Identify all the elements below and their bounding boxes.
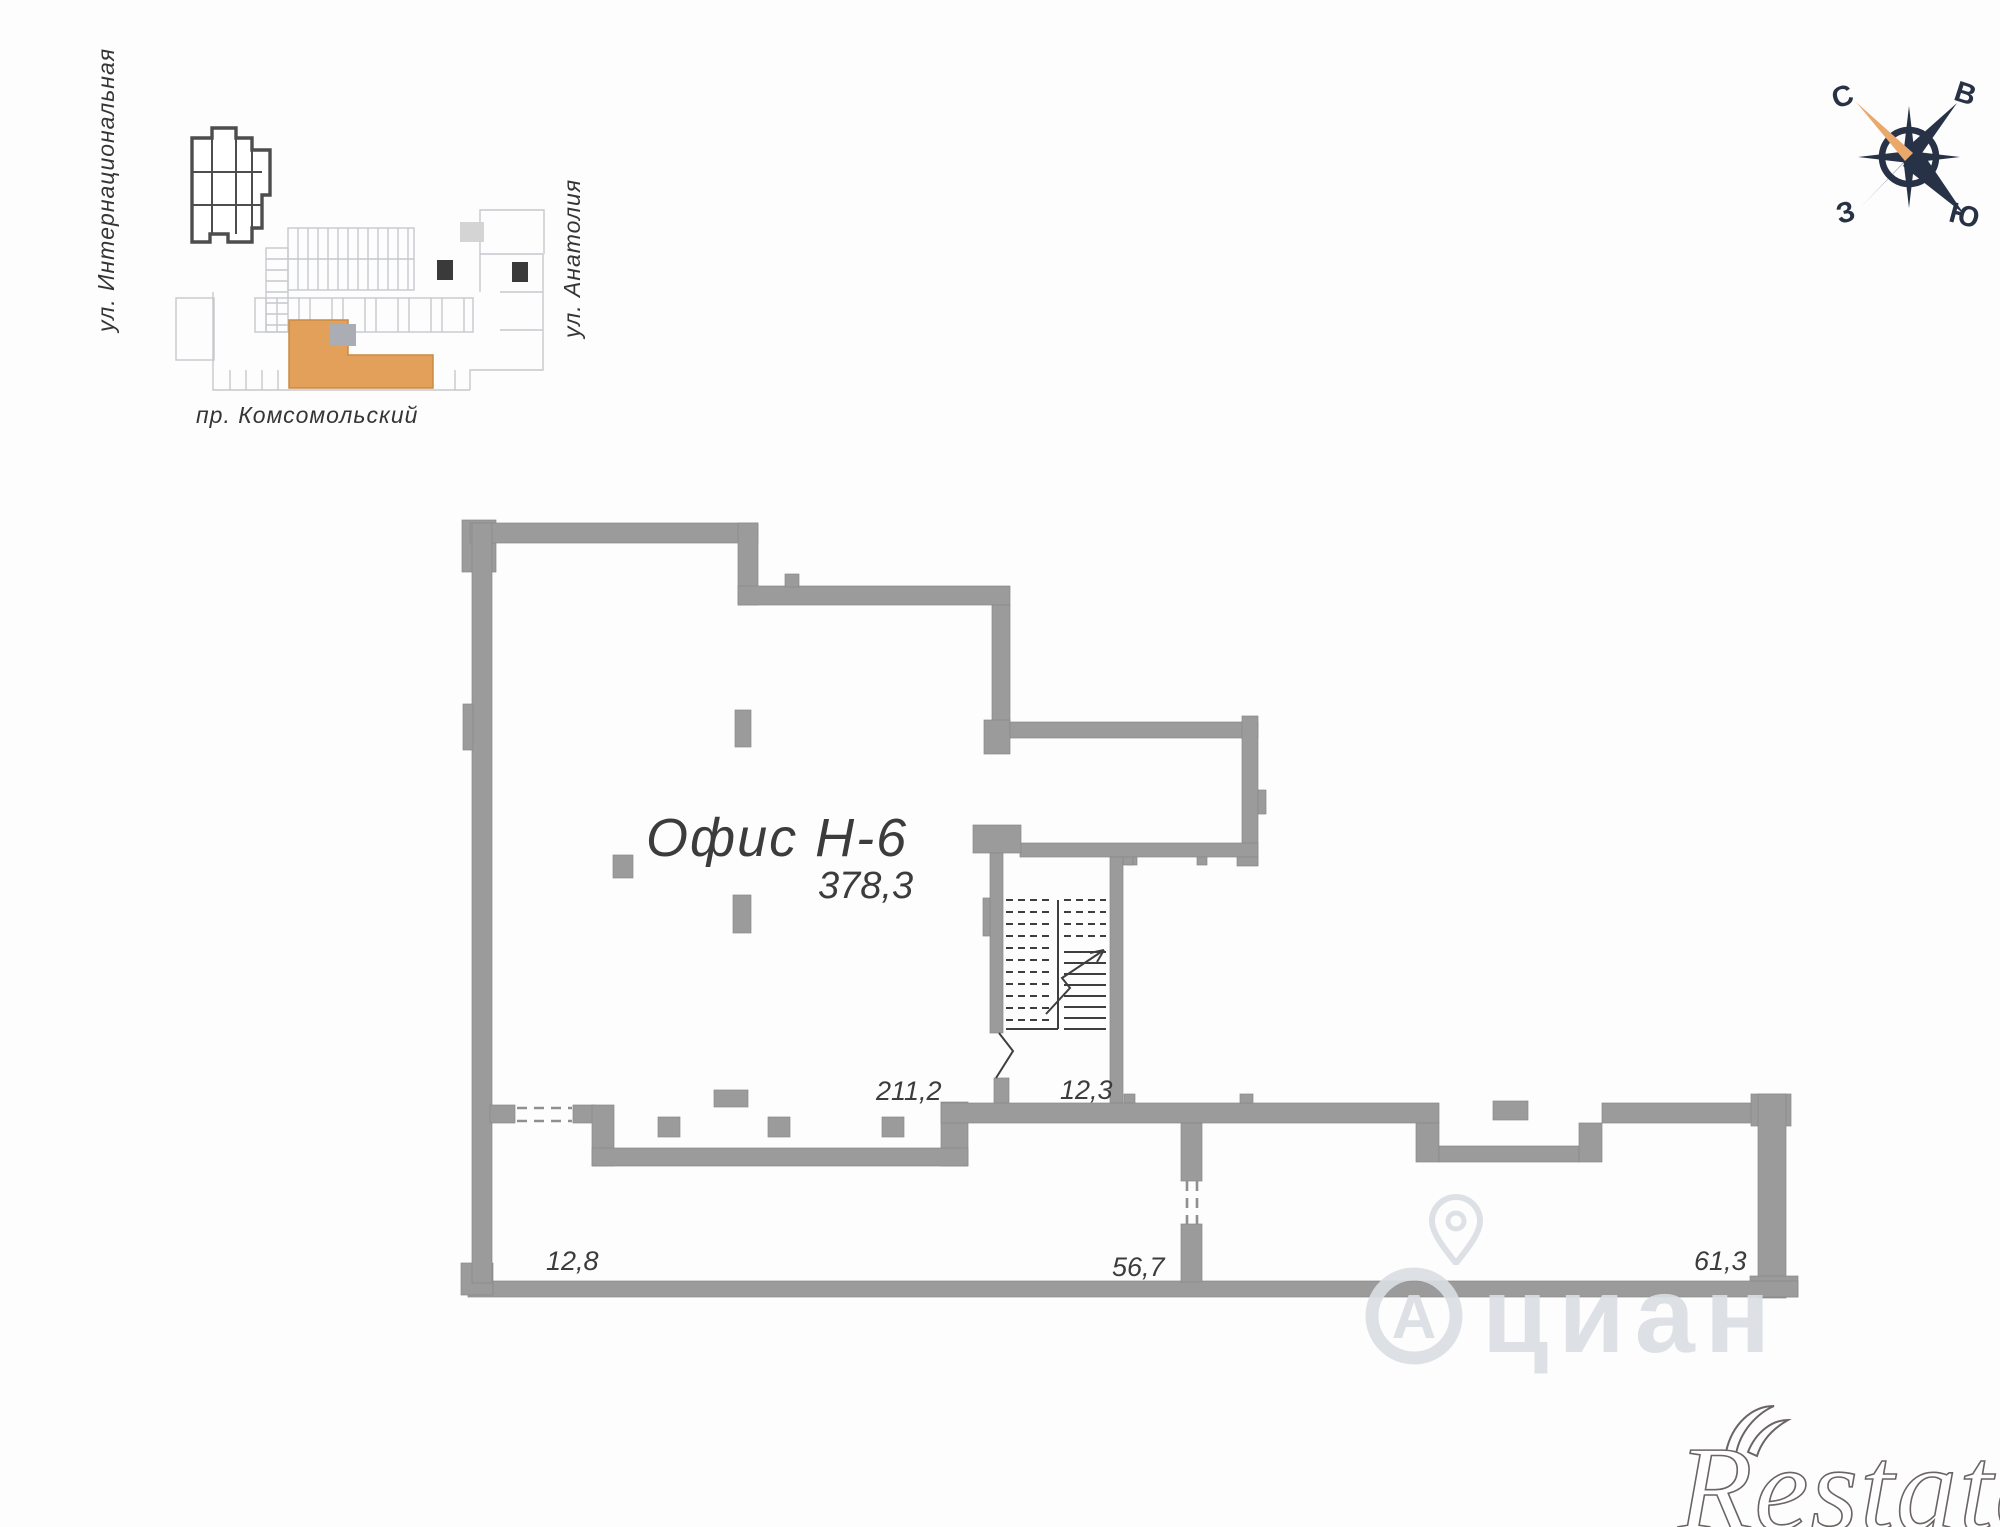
compass-letter-west: З [1833,195,1859,231]
room-area-label: 12,3 [1060,1075,1113,1105]
wall-pilaster [463,704,473,750]
wall-segment [1439,1146,1579,1162]
wall-notch [1197,857,1207,865]
stair-steps-left [1006,900,1052,1020]
cian-logo-letter: А [1392,1283,1437,1352]
wall-notch [785,574,799,587]
column [658,1117,680,1137]
minimap-bold-building [192,128,270,242]
wall-pilaster [983,898,990,936]
compass-rose: С В З Ю [1828,76,1983,236]
wall-notch [1123,857,1133,865]
minimap-gray-insert [330,324,356,346]
cian-watermark-text: циан [1482,1254,1780,1375]
minimap-hatch-block [460,222,484,242]
wall-segment [1181,1224,1202,1282]
wall-segment [941,1103,1439,1123]
column [882,1117,904,1137]
wall-notch [1124,1094,1135,1103]
wall-segment [738,586,1010,605]
wall-segment [1416,1123,1439,1162]
walls [461,520,1798,1298]
wall-segment [1020,843,1258,857]
wall-segment [1110,857,1123,1104]
column [768,1117,790,1137]
wall-segment [470,523,758,543]
room-area-label: 12,8 [546,1246,599,1276]
floor-plan: Офис Н-6 378,3 211,2 12,3 12,8 56,7 61,3 [461,520,1798,1298]
plan-title: Офис Н-6 [646,808,908,868]
watermark-cian: А циан [1372,1197,1780,1375]
compass-letter-north: С [1828,79,1858,116]
wall-segment [992,605,1010,735]
wall-segment [990,853,1003,1033]
restate-watermark-text: Restate [1677,1422,2000,1527]
wall-segment [592,1148,968,1166]
wall-segment [472,523,492,1283]
column [733,895,751,933]
wall-segment [490,1105,515,1123]
stairs [1006,900,1106,1029]
wall-notch [1237,857,1258,866]
floorplan-page: { "map": { "street_left": "ул. Интернаци… [0,0,2000,1527]
column [1493,1101,1528,1120]
minimap-highlight-office [289,320,433,388]
street-label-bottom: пр. Комсомольский [196,402,418,428]
area-labels: Офис Н-6 378,3 211,2 12,3 12,8 56,7 61,3 [546,808,1747,1282]
door-swing [996,1033,1013,1078]
stair-direction-arrow [1046,950,1104,1014]
stair-steps-right-upper [1064,900,1106,936]
minimap-dark-block [512,262,528,282]
room-area-label: 211,2 [875,1076,942,1106]
wall-notch [1240,1094,1253,1103]
street-label-left: ул. Интернациональная [93,48,119,334]
minimap-dark-block [437,260,453,280]
room-area-label: 56,7 [1112,1252,1166,1282]
column [735,710,751,747]
column [613,855,633,878]
map-pin-hole [1448,1213,1464,1229]
wall-segment [994,1078,1009,1106]
watermark-restate: Restate [1677,1406,2000,1527]
wall-segment [1602,1103,1757,1123]
wall-segment [1010,722,1258,738]
plan-total-area: 378,3 [818,865,913,907]
column [714,1090,748,1107]
wall-segment [1579,1123,1602,1162]
wall-notch [1258,790,1266,814]
stair-steps-right-lower [1006,952,1106,1029]
wall-segment [973,825,1021,853]
wall-pilaster [984,720,1010,754]
compass-letter-east: В [1950,76,1980,113]
wall-segment [1181,1123,1202,1181]
street-label-right: ул. Анатолия [559,179,585,340]
floorplan-image: ул. Интернациональная ул. Анатолия пр. К… [0,0,2000,1527]
site-minimap [176,128,544,390]
